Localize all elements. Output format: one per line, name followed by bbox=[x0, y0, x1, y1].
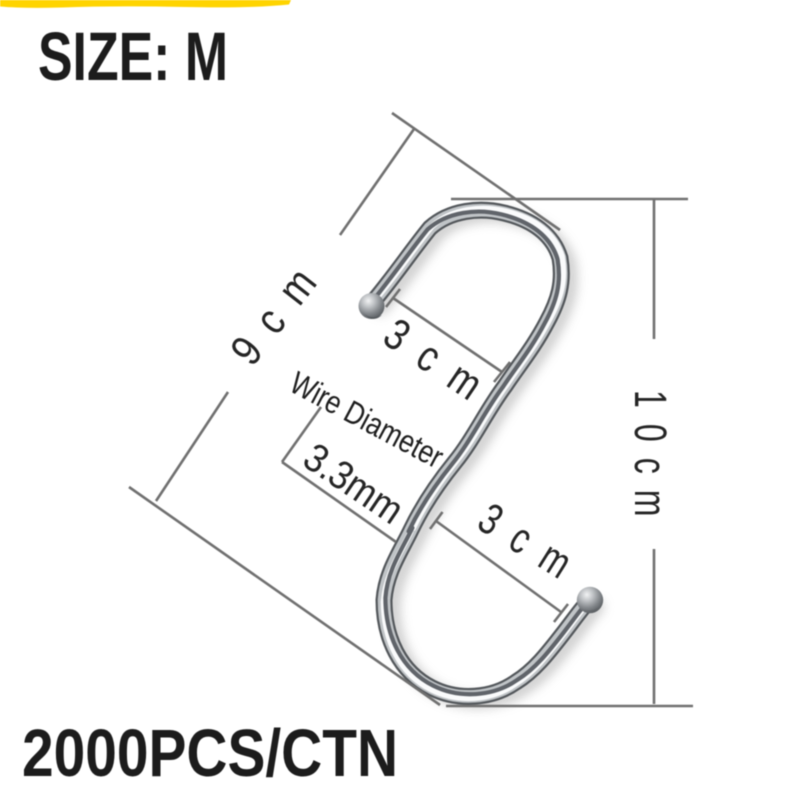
svg-text:2000PCS/CTN: 2000PCS/CTN bbox=[22, 716, 398, 791]
svg-text:SIZE: M: SIZE: M bbox=[38, 18, 228, 95]
svg-text:1 0 c m: 1 0 c m bbox=[625, 390, 676, 520]
